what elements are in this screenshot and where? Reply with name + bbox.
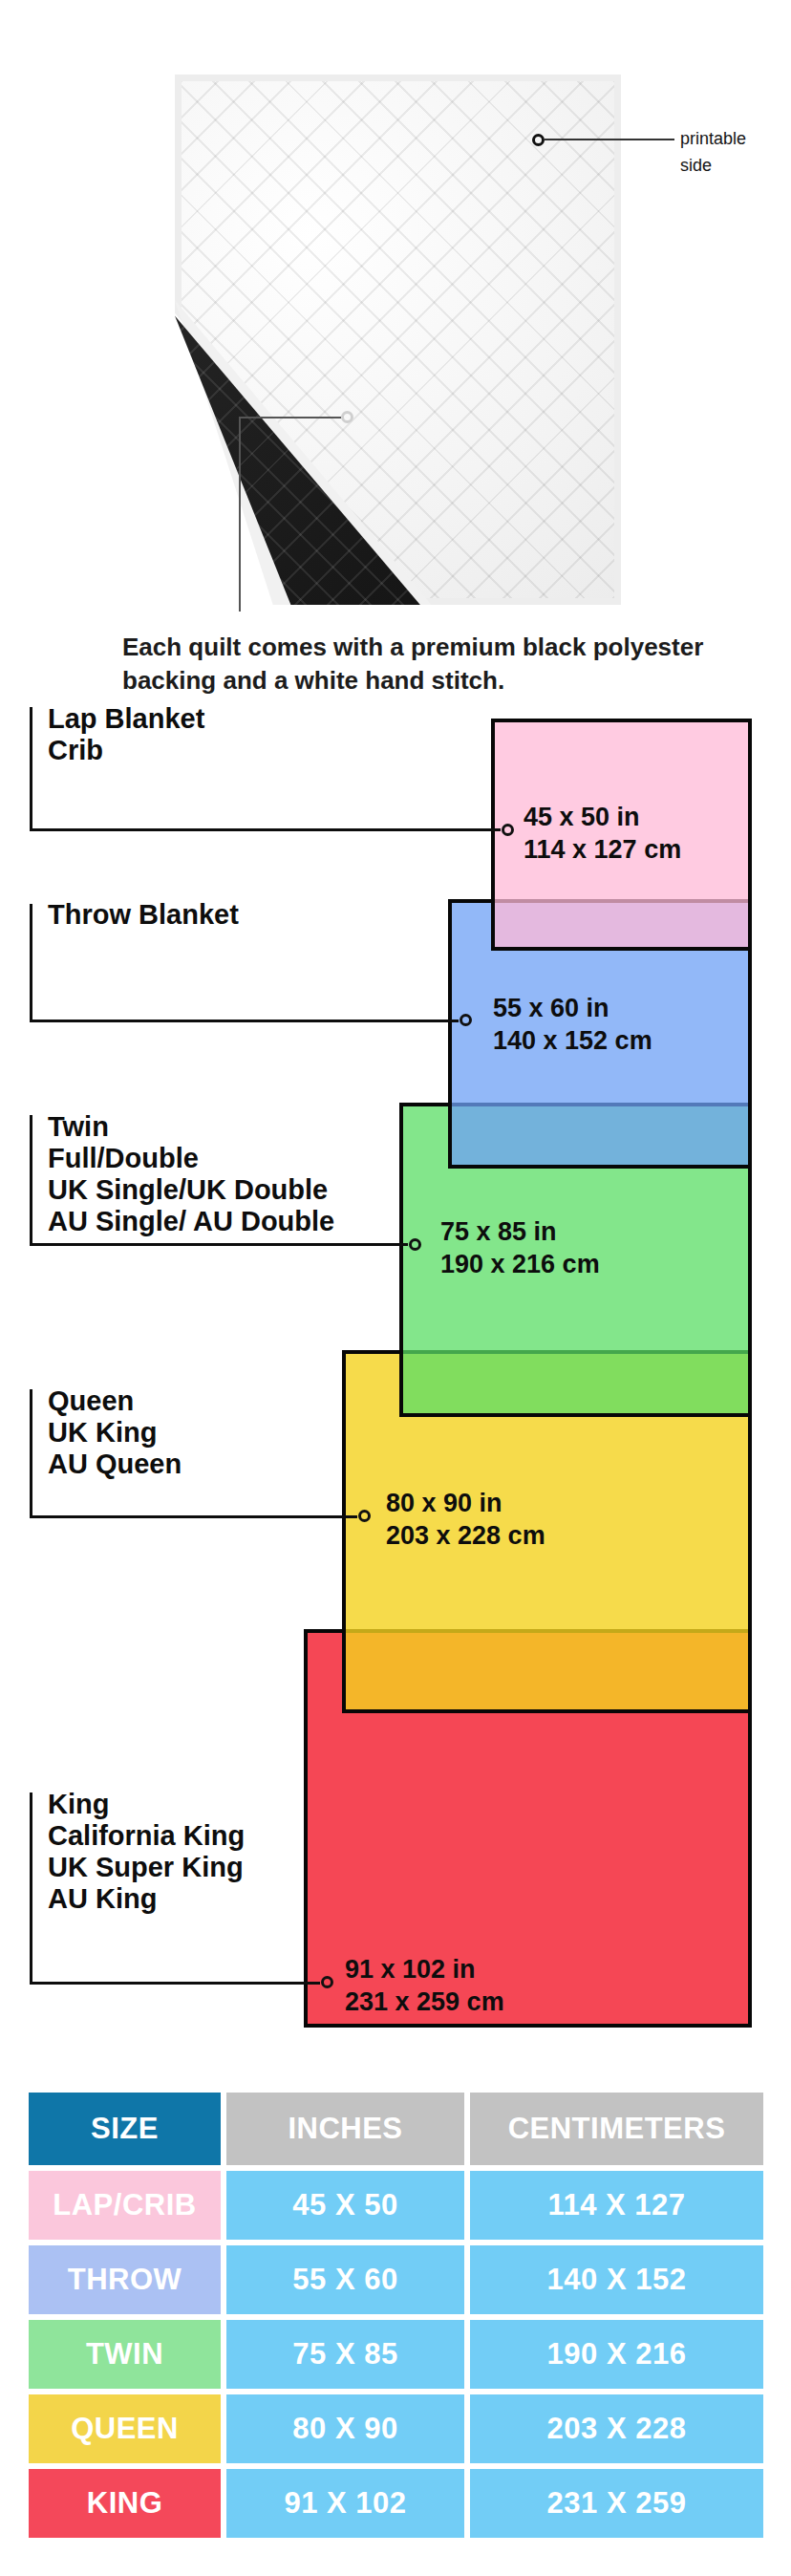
label-twin: Twin Full/Double UK Single/UK Double AU … [48, 1111, 334, 1237]
label-queen-line2: UK King [48, 1417, 182, 1449]
label-twin-line3: UK Single/UK Double [48, 1174, 334, 1206]
table-row-throw-cm: 140 X 152 [470, 2245, 763, 2314]
label-king: King California King UK Super King AU Ki… [48, 1789, 245, 1915]
table-row-queen-size: QUEEN [29, 2394, 221, 2463]
printable-side-label-line2: side [680, 152, 746, 179]
twin-marker-circle [409, 1238, 421, 1251]
table-header-size: SIZE [29, 2093, 221, 2165]
table-row-king-cm: 231 X 259 [470, 2469, 763, 2538]
dims-queen-inches: 80 x 90 in [386, 1487, 545, 1519]
label-twin-line2: Full/Double [48, 1143, 334, 1174]
dims-queen: 80 x 90 in 203 x 228 cm [386, 1487, 545, 1552]
label-lap-line2: Crib [48, 735, 204, 766]
dims-king-inches: 91 x 102 in [345, 1953, 504, 1986]
quilt-front-white [175, 75, 621, 605]
king-bracket-vertical [30, 1792, 32, 1985]
label-lap-line1: Lap Blanket [48, 703, 204, 735]
label-queen-line3: AU Queen [48, 1449, 182, 1480]
table-row-king-size: KING [29, 2469, 221, 2538]
dims-throw: 55 x 60 in 140 x 152 cm [493, 992, 652, 1057]
label-king-line3: UK Super King [48, 1852, 245, 1883]
size-table: SIZE INCHES CENTIMETERS LAP/CRIB 45 X 50… [29, 2093, 761, 2538]
throw-bracket-horizontal [30, 1020, 459, 1022]
dims-lap-cm: 114 x 127 cm [524, 833, 681, 866]
printable-side-label-line1: printable [680, 125, 746, 152]
table-row-lap-size: LAP/CRIB [29, 2171, 221, 2240]
dims-throw-inches: 55 x 60 in [493, 992, 652, 1024]
table-row-throw-inches: 55 X 60 [226, 2245, 464, 2314]
label-king-line4: AU King [48, 1883, 245, 1915]
label-queen: Queen UK King AU Queen [48, 1385, 182, 1480]
quilt-caption-line2: backing and a white hand stitch. [122, 664, 715, 698]
label-king-line2: California King [48, 1820, 245, 1852]
label-twin-line1: Twin [48, 1111, 334, 1143]
label-lap-crib: Lap Blanket Crib [48, 703, 204, 766]
dims-twin-cm: 190 x 216 cm [440, 1248, 600, 1280]
dims-lap-inches: 45 x 50 in [524, 801, 681, 833]
label-twin-line4: AU Single/ AU Double [48, 1206, 334, 1237]
label-throw: Throw Blanket [48, 899, 239, 931]
table-row-queen-inches: 80 X 90 [226, 2394, 464, 2463]
twin-bracket-horizontal [30, 1243, 408, 1246]
quilt-caption: Each quilt comes with a premium black po… [122, 631, 715, 698]
table-row-lap-cm: 114 X 127 [470, 2171, 763, 2240]
table-row-queen-cm: 203 X 228 [470, 2394, 763, 2463]
throw-marker-circle [460, 1014, 472, 1026]
size-chart-infographic: printable side Each quilt comes with a p… [0, 0, 791, 2576]
table-row-king-inches: 91 X 102 [226, 2469, 464, 2538]
lap-bracket-vertical [30, 707, 32, 831]
label-queen-line1: Queen [48, 1385, 182, 1417]
table-row-twin-inches: 75 X 85 [226, 2320, 464, 2389]
lap-bracket-horizontal [30, 828, 501, 831]
dims-twin: 75 x 85 in 190 x 216 cm [440, 1215, 600, 1280]
table-row-twin-cm: 190 X 216 [470, 2320, 763, 2389]
twin-bracket-vertical [30, 1115, 32, 1246]
queen-bracket-horizontal [30, 1515, 357, 1518]
printable-side-leader-line [545, 139, 674, 140]
quilt-caption-line1: Each quilt comes with a premium black po… [122, 631, 715, 664]
printable-side-marker-circle [532, 134, 545, 146]
backing-marker-circle [341, 411, 353, 423]
queen-bracket-vertical [30, 1389, 32, 1518]
table-header-centimeters: CENTIMETERS [470, 2093, 763, 2165]
label-king-line1: King [48, 1789, 245, 1820]
dims-king: 91 x 102 in 231 x 259 cm [345, 1953, 504, 2018]
table-row-throw-size: THROW [29, 2245, 221, 2314]
dims-king-cm: 231 x 259 cm [345, 1986, 504, 2018]
table-row-twin-size: TWIN [29, 2320, 221, 2389]
quilt-photo [175, 75, 621, 605]
king-marker-circle [321, 1976, 333, 1988]
dims-lap: 45 x 50 in 114 x 127 cm [524, 801, 681, 866]
lap-marker-circle [502, 824, 514, 836]
dims-twin-inches: 75 x 85 in [440, 1215, 600, 1248]
backing-leader-line-vertical [239, 417, 241, 612]
king-bracket-horizontal [30, 1982, 320, 1985]
label-throw-line1: Throw Blanket [48, 899, 239, 931]
queen-marker-circle [358, 1510, 371, 1522]
table-row-lap-inches: 45 X 50 [226, 2171, 464, 2240]
table-header-inches: INCHES [226, 2093, 464, 2165]
printable-side-label: printable side [680, 125, 746, 179]
dims-throw-cm: 140 x 152 cm [493, 1024, 652, 1057]
throw-bracket-vertical [30, 904, 32, 1022]
backing-leader-line-horizontal [239, 417, 341, 419]
dims-queen-cm: 203 x 228 cm [386, 1519, 545, 1552]
